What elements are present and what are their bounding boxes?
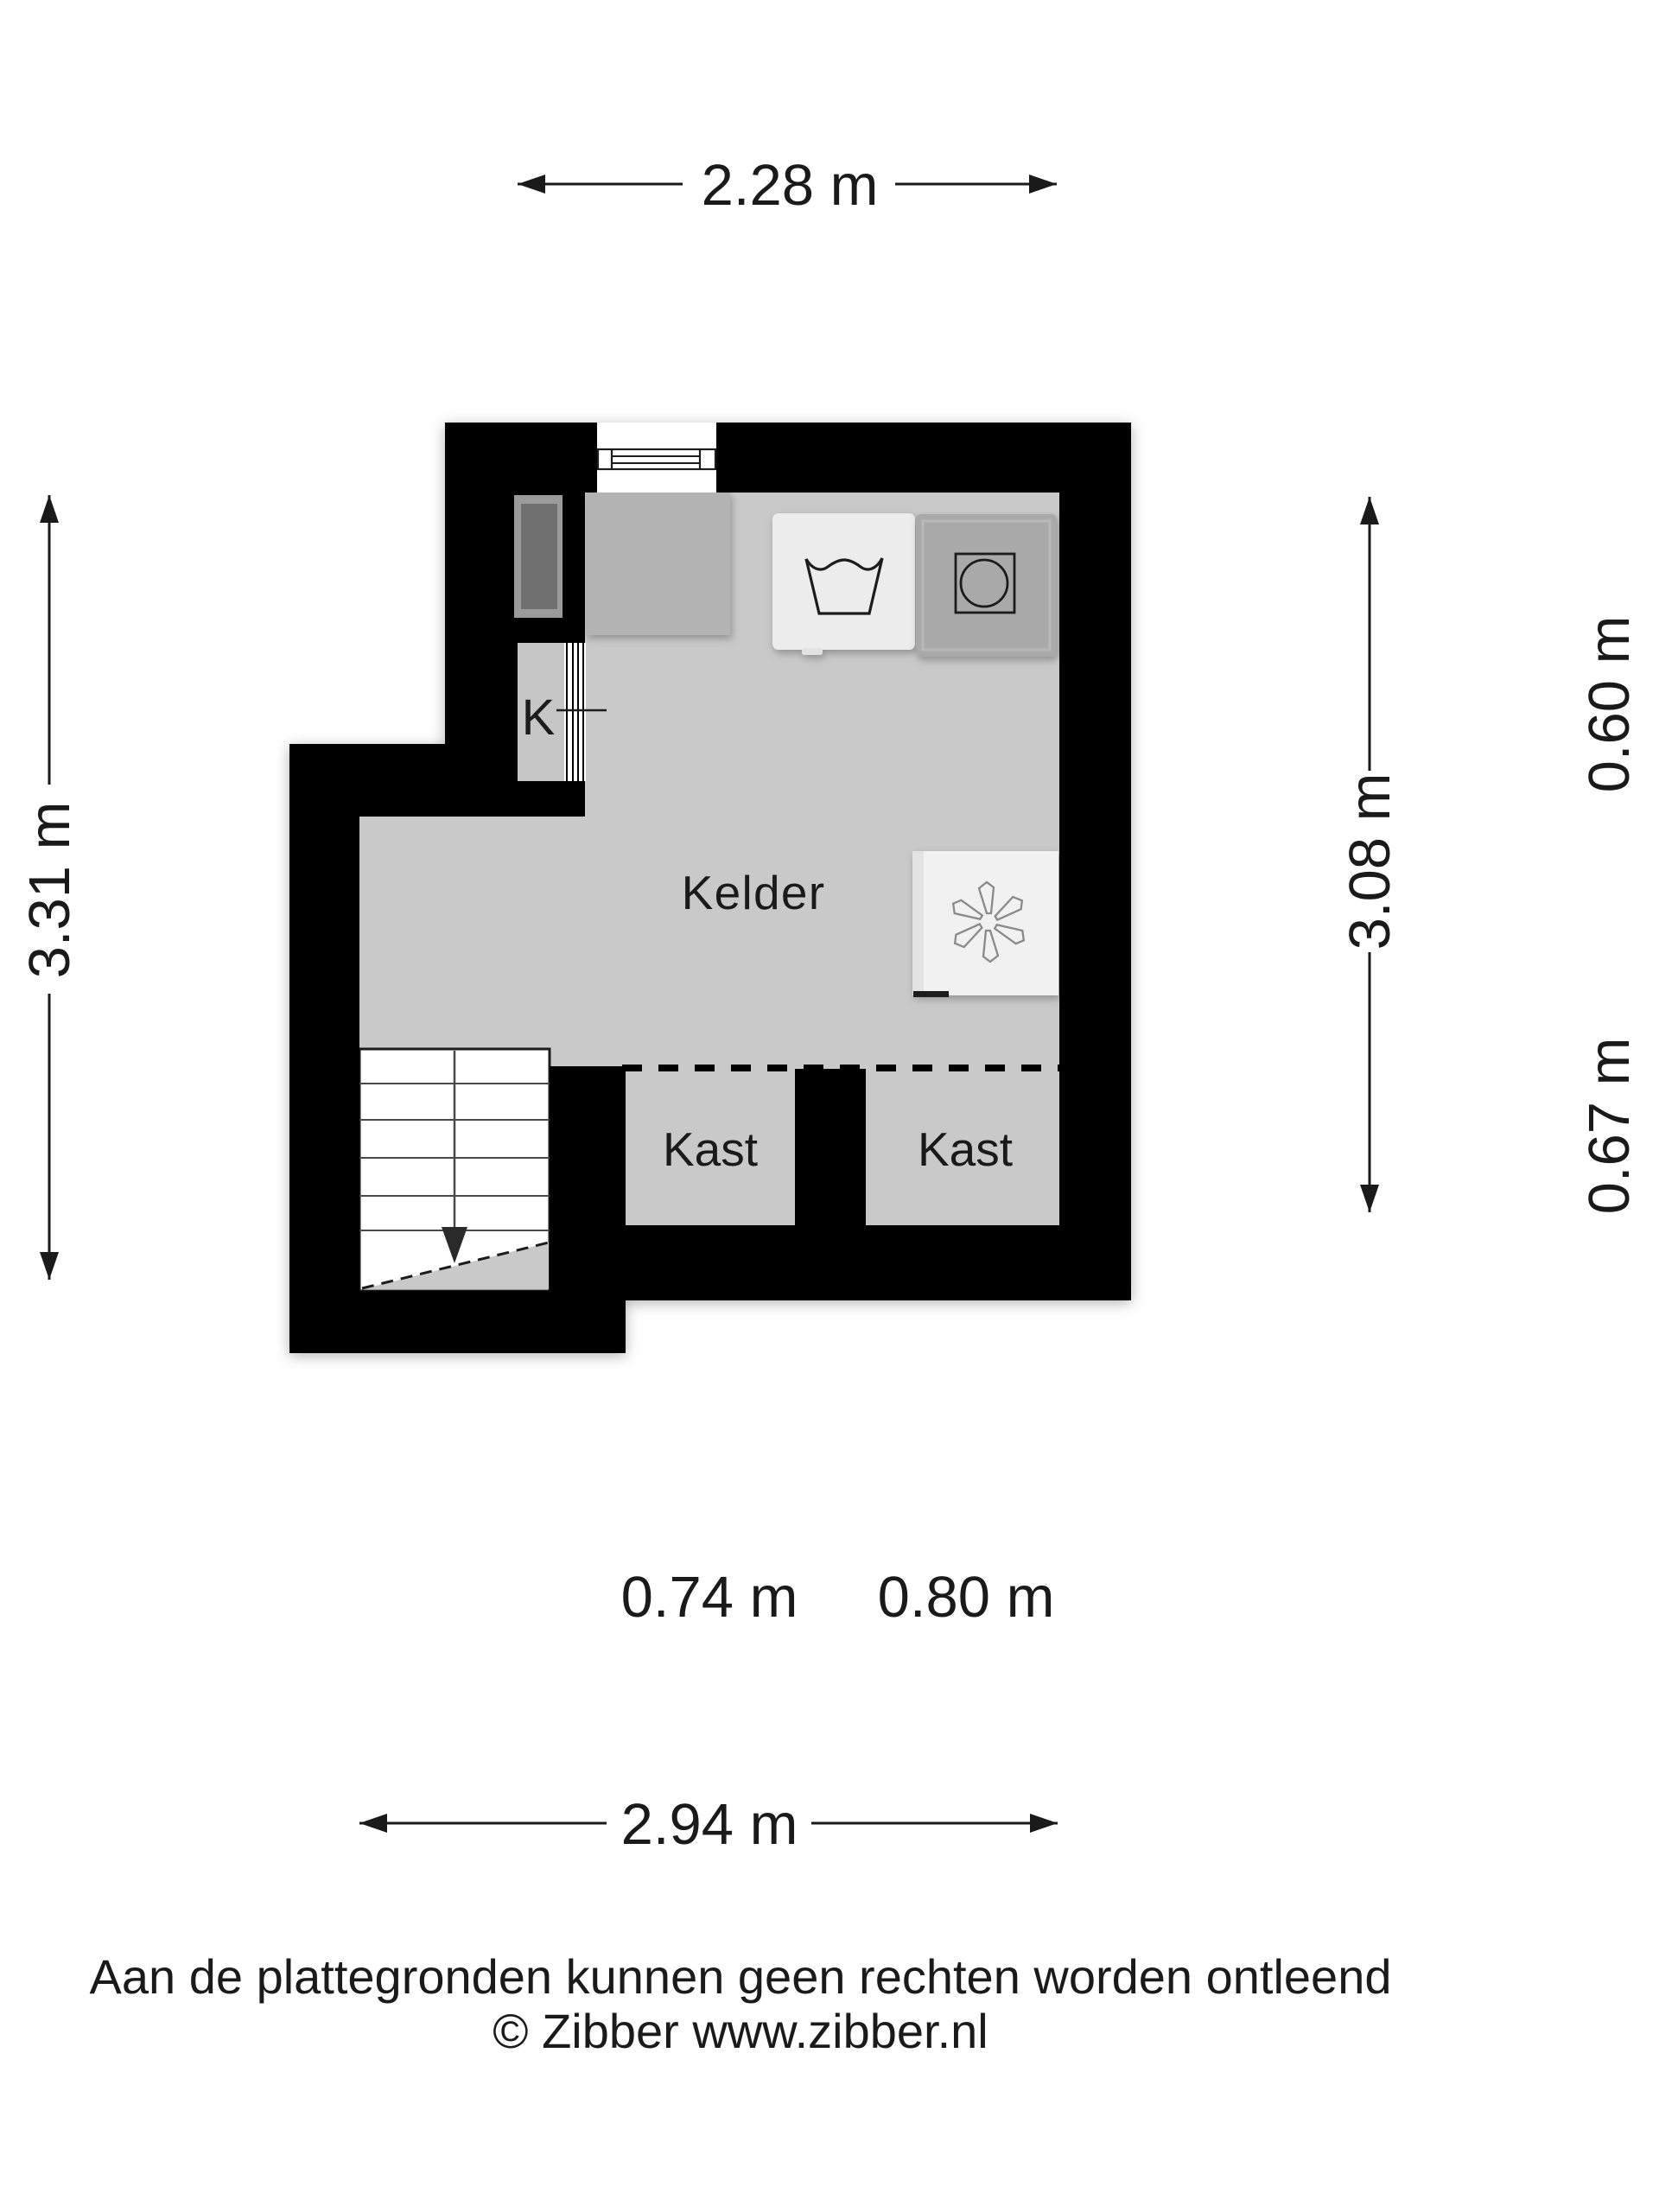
svg-text:3.31 m: 3.31 m [17, 802, 82, 979]
svg-text:2.94 m: 2.94 m [621, 1792, 798, 1857]
svg-text:Kelder: Kelder [682, 866, 826, 919]
svg-text:© Zibber www.zibber.nl: © Zibber www.zibber.nl [493, 2004, 988, 2058]
svg-text:Kast: Kast [918, 1122, 1013, 1176]
svg-text:0.67 m: 0.67 m [1577, 1038, 1642, 1215]
svg-text:0.60 m: 0.60 m [1577, 616, 1642, 793]
svg-text:2.28 m: 2.28 m [702, 153, 879, 218]
svg-text:0.80 m: 0.80 m [878, 1565, 1055, 1630]
svg-text:Kast: Kast [663, 1122, 758, 1176]
svg-text:3.08 m: 3.08 m [1338, 773, 1402, 950]
svg-text:Aan de plattegronden kunnen ge: Aan de plattegronden kunnen geen rechten… [90, 1949, 1392, 2004]
svg-text:0.74 m: 0.74 m [621, 1565, 798, 1630]
svg-text:K: K [522, 690, 556, 746]
